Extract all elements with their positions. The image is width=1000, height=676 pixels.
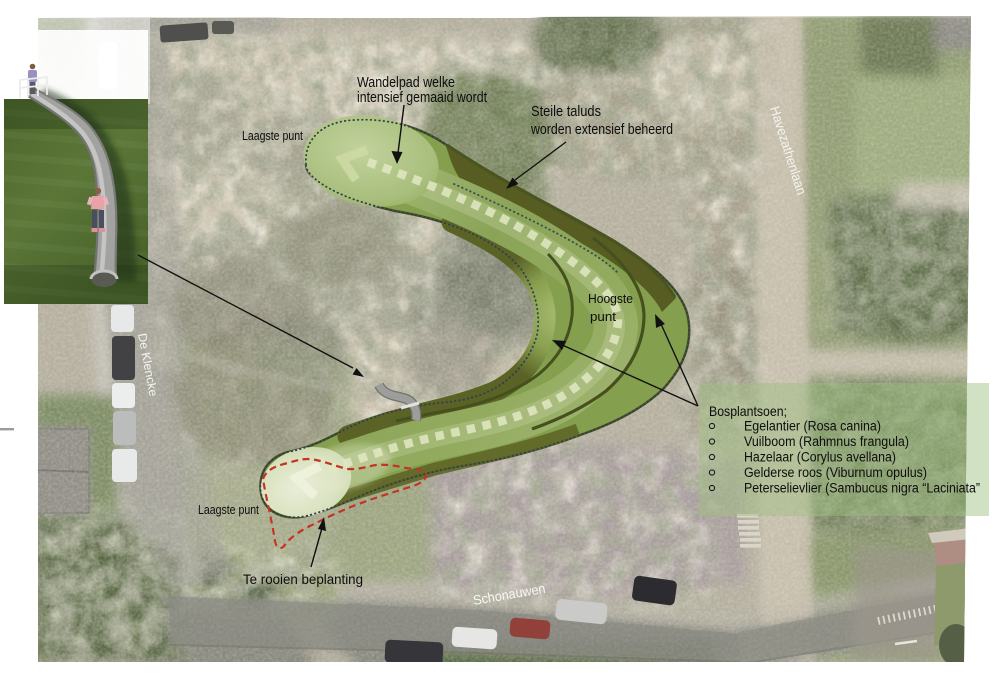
svg-text:worden extensief beheerd: worden extensief beheerd: [530, 122, 673, 138]
svg-text:Laagste punt: Laagste punt: [198, 503, 259, 517]
svg-text:Gelderse roos (Viburnum opulus: Gelderse roos (Viburnum opulus): [744, 465, 927, 480]
svg-text:Te rooien beplanting: Te rooien beplanting: [243, 571, 363, 587]
svg-text:Wandelpad welke: Wandelpad welke: [357, 75, 455, 91]
svg-text:Hoogste: Hoogste: [588, 292, 633, 306]
svg-text:punt: punt: [590, 310, 617, 324]
svg-text:intensief gemaaid wordt: intensief gemaaid wordt: [357, 90, 487, 106]
svg-text:Egelantier (Rosa canina): Egelantier (Rosa canina): [744, 419, 881, 434]
svg-text:Bosplantsoen;: Bosplantsoen;: [709, 403, 787, 419]
svg-text:Steile taluds: Steile taluds: [531, 104, 601, 120]
svg-text:Hazelaar (Corylus avellana): Hazelaar (Corylus avellana): [744, 450, 896, 465]
svg-text:Vuilboom (Rahmnus frangula): Vuilboom (Rahmnus frangula): [744, 434, 909, 449]
svg-text:Peterselievlier (Sambucus nigr: Peterselievlier (Sambucus nigra “Lacinia…: [744, 481, 980, 496]
svg-text:Laagste punt: Laagste punt: [242, 129, 303, 143]
